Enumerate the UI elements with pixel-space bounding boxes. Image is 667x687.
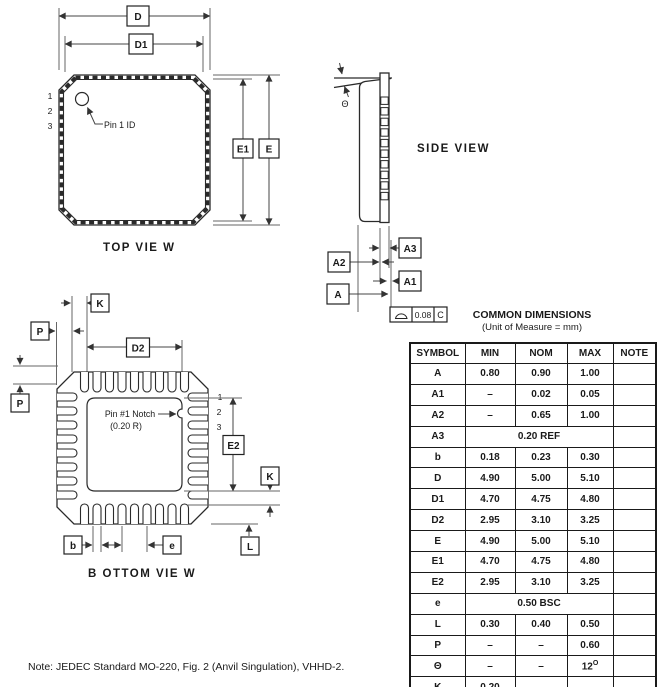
side-view-caption: SIDE VIEW [417, 143, 490, 155]
pin-number-2b: 2 [217, 407, 222, 417]
svg-text:D: D [134, 12, 141, 23]
dim-box-A: A [327, 284, 349, 304]
dim-box-K-right: K [261, 467, 279, 485]
table-title-block: COMMON DIMENSIONS (Unit of Measure = mm) [409, 309, 655, 333]
table-row: D4.905.005.10 [410, 468, 656, 489]
svg-text:e: e [169, 541, 175, 552]
dim-box-K-top: K [91, 294, 109, 312]
svg-text:P: P [37, 327, 44, 338]
svg-text:K: K [96, 299, 104, 310]
dim-box-b: b [64, 536, 82, 554]
svg-text:L: L [247, 542, 253, 553]
svg-text:E1: E1 [237, 145, 250, 156]
table-row: e0.50 BSC [410, 593, 656, 614]
svg-text:K: K [266, 472, 274, 483]
dim-box-E2: E2 [223, 436, 244, 455]
table-row: A30.20 REF [410, 426, 656, 447]
table-row: D14.704.754.80 [410, 489, 656, 510]
pin-number-3: 3 [48, 121, 53, 131]
pin-number-3b: 3 [217, 422, 222, 432]
dim-box-A2: A2 [328, 252, 350, 272]
common-dimensions-table: SYMBOL MIN NOM MAX NOTE A0.800.901.00 A1… [409, 342, 657, 687]
pin-number-2: 2 [48, 106, 53, 116]
package-drawing-page: Pin 1 ID 1 2 3 D D1 E1 E TOP VIE W Θ [0, 0, 667, 687]
table-row: b0.180.230.30 [410, 447, 656, 468]
dim-box-D: D [127, 6, 149, 26]
top-view-caption: TOP VIE W [103, 242, 176, 254]
pin1-id-circle [76, 93, 89, 106]
table-row: A2–0.651.00 [410, 405, 656, 426]
bottom-view: K P P D2 [11, 294, 280, 580]
bottom-view-caption: B OTTOM VIE W [88, 568, 196, 580]
table-title: COMMON DIMENSIONS [409, 309, 655, 321]
table-subtitle: (Unit of Measure = mm) [409, 322, 655, 333]
dim-box-E1: E1 [233, 139, 253, 158]
top-view: Pin 1 ID 1 2 3 D D1 E1 E TOP VIE W [48, 6, 280, 254]
table-row: L0.300.400.50 [410, 614, 656, 635]
table-row: K0.20–– [410, 677, 656, 687]
notch-label-2: (0.20 R) [110, 421, 142, 431]
col-note: NOTE [613, 343, 656, 364]
table-row: E22.953.103.25 [410, 572, 656, 593]
dim-box-P-left: P [11, 394, 29, 412]
svg-text:D2: D2 [132, 344, 145, 355]
table-row: E14.704.754.80 [410, 552, 656, 573]
svg-text:b: b [70, 541, 76, 552]
dim-box-A1: A1 [399, 271, 421, 291]
pin-number-1b: 1 [218, 392, 223, 402]
table-header-row: SYMBOL MIN NOM MAX NOTE [410, 343, 656, 364]
dim-box-e: e [163, 536, 181, 554]
svg-text:P: P [17, 399, 24, 410]
table-row: D22.953.103.25 [410, 510, 656, 531]
svg-text:E2: E2 [227, 441, 240, 452]
theta-symbol: Θ [341, 99, 348, 109]
dim-box-D2: D2 [127, 338, 150, 357]
pin1-id-label: Pin 1 ID [104, 120, 135, 130]
dim-box-P-top: P [31, 322, 49, 340]
table-row: A1–0.020.05 [410, 384, 656, 405]
svg-text:A1: A1 [404, 277, 417, 288]
jedec-note: Note: JEDEC Standard MO-220, Fig. 2 (Anv… [28, 661, 344, 673]
table-row: P––0.60 [410, 635, 656, 656]
dim-box-L: L [241, 537, 259, 555]
svg-text:A2: A2 [333, 258, 346, 269]
table-row: Θ––12O [410, 656, 656, 677]
col-min: MIN [465, 343, 515, 364]
dim-box-D1: D1 [129, 34, 153, 54]
side-view: Θ SIDE VIEW A3 A2 [327, 63, 490, 322]
svg-text:A3: A3 [404, 244, 417, 255]
table-row: E4.905.005.10 [410, 531, 656, 552]
table-row: A0.800.901.00 [410, 364, 656, 385]
notch-label-1: Pin #1 Notch [105, 409, 155, 419]
col-max: MAX [567, 343, 613, 364]
package-body-side [360, 80, 382, 222]
dim-box-A3: A3 [399, 238, 421, 258]
col-nom: NOM [515, 343, 567, 364]
svg-text:E: E [266, 145, 273, 156]
svg-text:D1: D1 [135, 40, 148, 51]
pin-number-1: 1 [48, 91, 53, 101]
dim-box-E: E [259, 139, 279, 158]
col-symbol: SYMBOL [410, 343, 465, 364]
svg-text:A: A [334, 290, 341, 301]
